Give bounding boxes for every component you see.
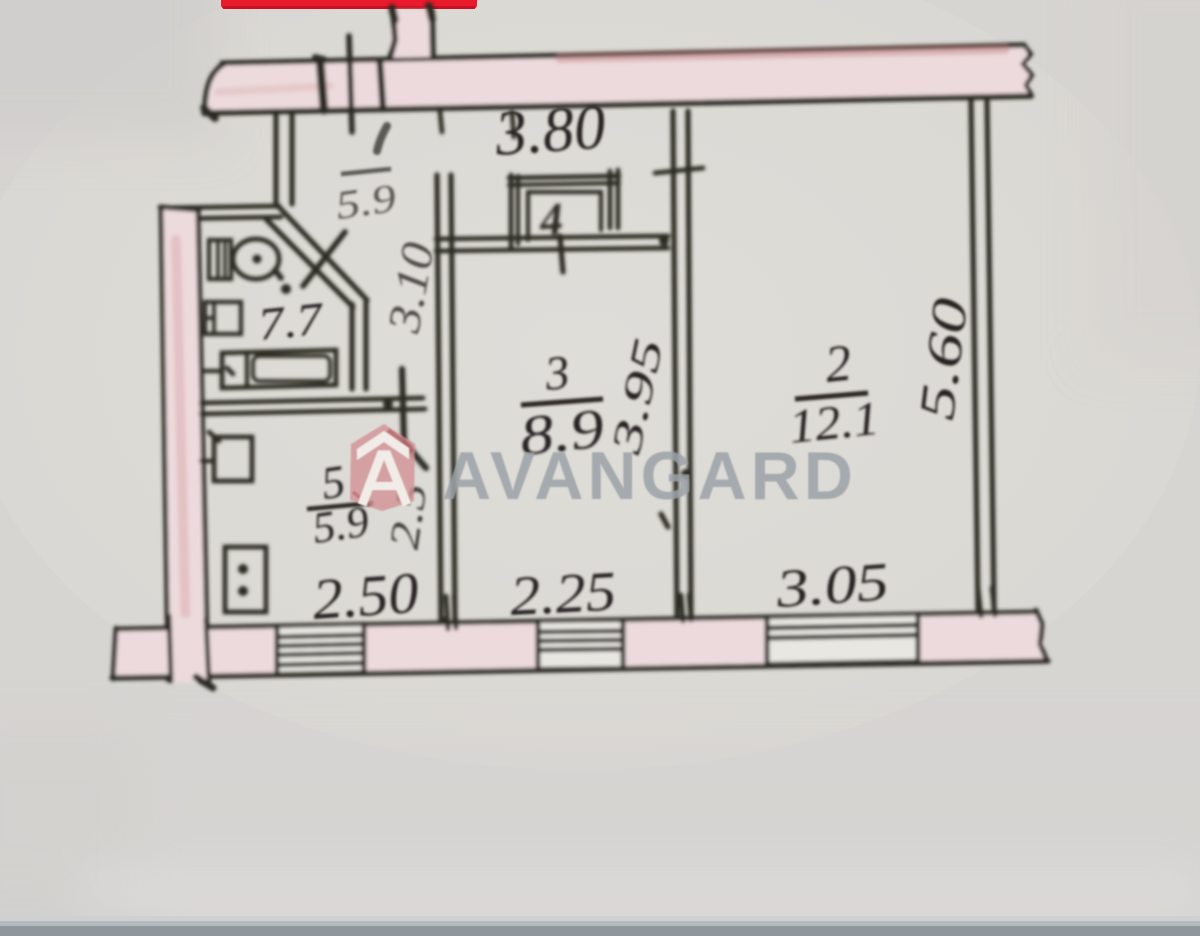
svg-text:2.50: 2.50 [310, 560, 420, 632]
svg-text:3.80: 3.80 [492, 90, 608, 169]
svg-text:5.9: 5.9 [333, 175, 399, 228]
svg-text:2.25: 2.25 [508, 561, 617, 628]
svg-text:3.05: 3.05 [773, 551, 890, 619]
svg-text:7.7: 7.7 [256, 292, 327, 350]
svg-text:AVANGARD: AVANGARD [442, 438, 857, 514]
